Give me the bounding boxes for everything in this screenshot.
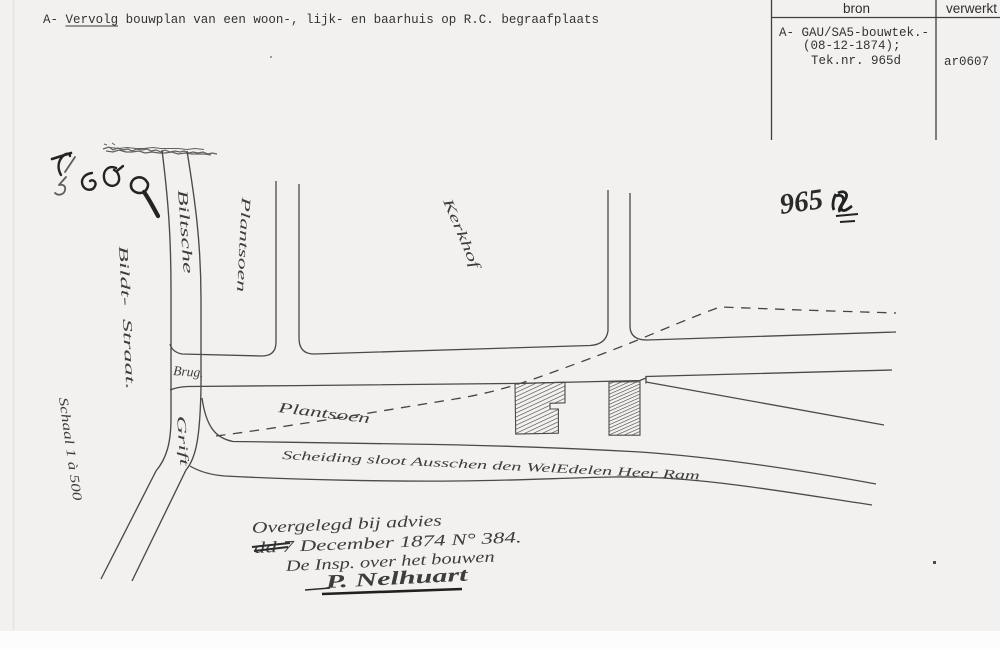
svg-text:ar0607: ar0607 <box>944 55 989 69</box>
svg-text:Brug.: Brug. <box>173 363 204 380</box>
svg-text:bron: bron <box>843 1 870 16</box>
svg-text:verwerkt: verwerkt <box>946 1 997 16</box>
svg-text:965: 965 <box>778 183 826 221</box>
svg-text:Tek.nr. 965d: Tek.nr. 965d <box>811 54 901 68</box>
svg-text:A- GAU/SA5-bouwtek.-: A- GAU/SA5-bouwtek.- <box>779 26 929 40</box>
svg-text:(08-12-1874);: (08-12-1874); <box>803 39 901 53</box>
svg-text:A- Vervolg bouwplan van een wo: A- Vervolg bouwplan van een woon-, lijk-… <box>43 13 599 27</box>
